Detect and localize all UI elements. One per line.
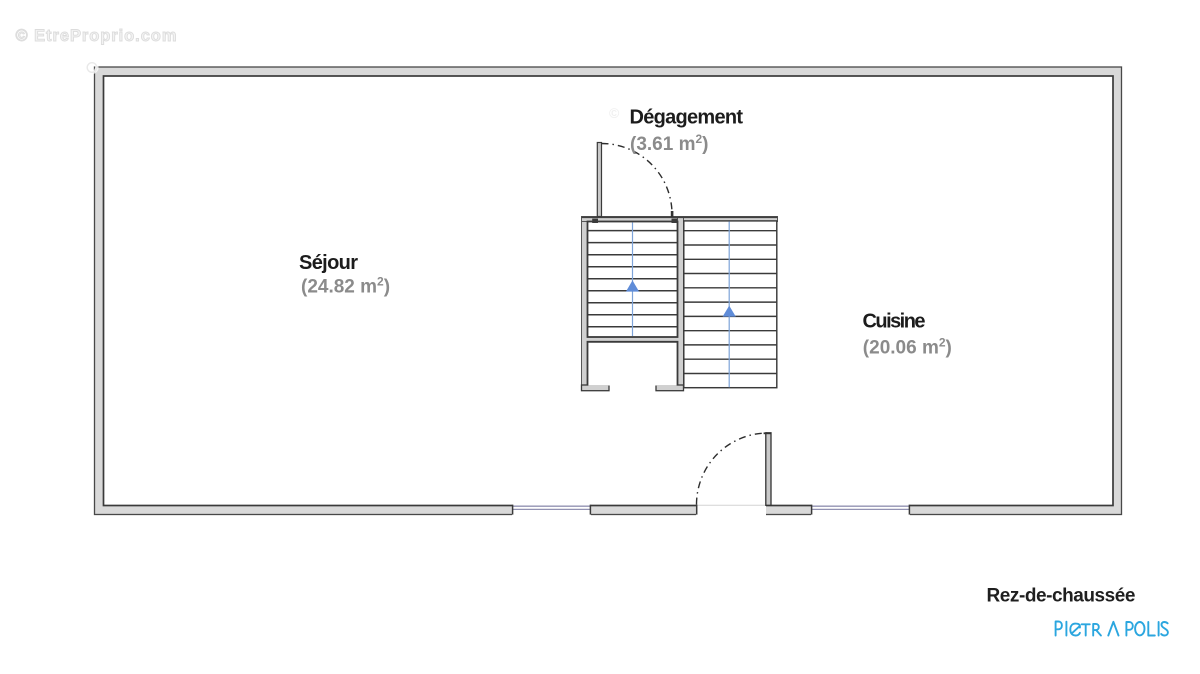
svg-text:© EtreProprio.com: © EtreProprio.com — [16, 27, 177, 45]
svg-text:©: © — [609, 105, 620, 121]
svg-text:Rez-de-chaussée: Rez-de-chaussée — [987, 585, 1136, 606]
svg-text:(24.82 m2): (24.82 m2) — [301, 275, 390, 298]
svg-text:(20.06 m2): (20.06 m2) — [863, 336, 952, 359]
svg-text:Cuisine: Cuisine — [863, 310, 926, 332]
svg-text:(3.61 m2): (3.61 m2) — [630, 132, 709, 155]
svg-text:Dégagement: Dégagement — [630, 107, 744, 129]
svg-text:Séjour: Séjour — [299, 252, 358, 274]
